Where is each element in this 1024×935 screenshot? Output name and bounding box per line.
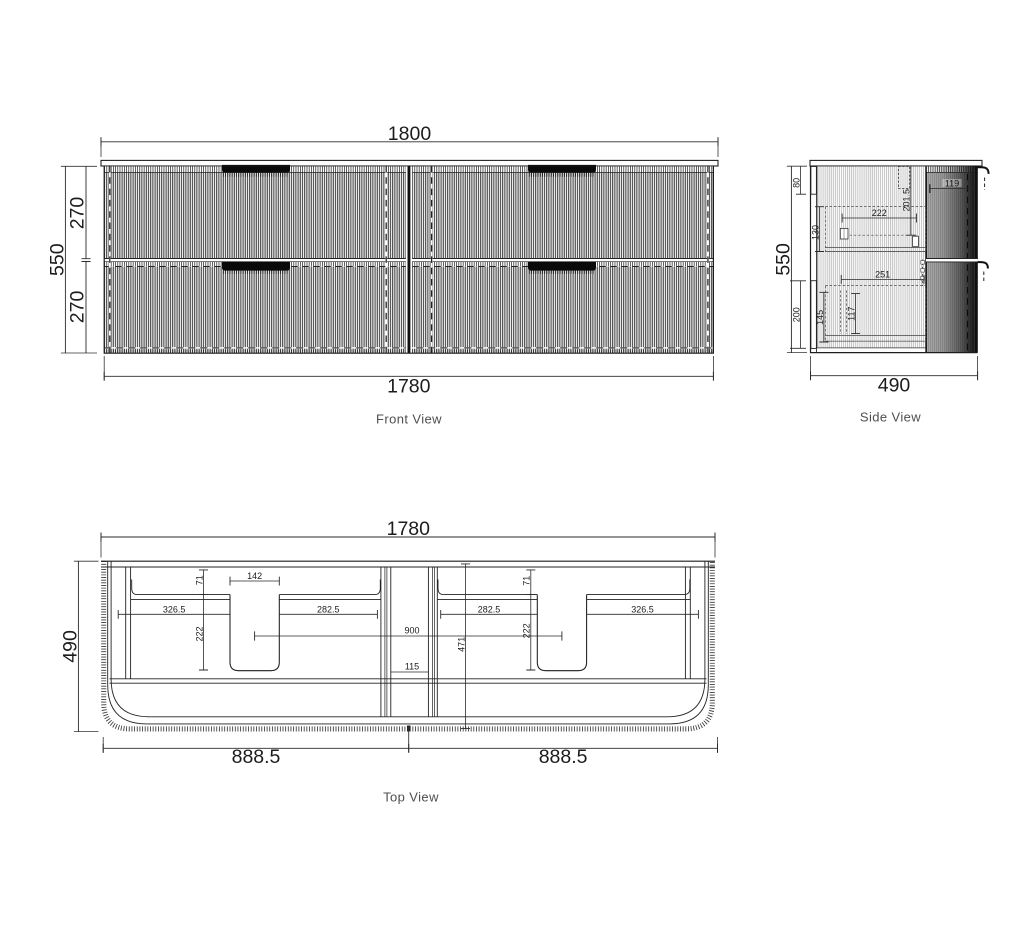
svg-text:282.5: 282.5 <box>478 604 501 614</box>
svg-text:270: 270 <box>67 290 89 323</box>
svg-text:Top View: Top View <box>383 789 439 804</box>
svg-text:251: 251 <box>875 269 890 279</box>
svg-text:326.5: 326.5 <box>631 604 654 614</box>
svg-text:80: 80 <box>791 178 801 188</box>
svg-text:888.5: 888.5 <box>232 746 281 768</box>
svg-text:490: 490 <box>878 375 911 397</box>
svg-text:550: 550 <box>46 243 68 276</box>
svg-text:119: 119 <box>945 179 959 189</box>
svg-text:142: 142 <box>247 571 262 581</box>
svg-text:550: 550 <box>773 243 795 276</box>
svg-text:200: 200 <box>792 307 802 322</box>
svg-text:326.5: 326.5 <box>163 604 186 614</box>
svg-text:222: 222 <box>194 626 204 641</box>
svg-text:145: 145 <box>815 310 825 325</box>
svg-text:1780: 1780 <box>387 518 431 540</box>
svg-text:71: 71 <box>522 576 532 586</box>
svg-text:282.5: 282.5 <box>317 604 340 614</box>
svg-text:Side View: Side View <box>860 410 921 425</box>
svg-text:888.5: 888.5 <box>539 746 588 768</box>
svg-text:471: 471 <box>456 637 466 652</box>
svg-text:270: 270 <box>67 197 89 230</box>
svg-text:1780: 1780 <box>387 375 431 397</box>
svg-text:115: 115 <box>405 662 419 672</box>
svg-text:130: 130 <box>810 225 820 240</box>
svg-text:201.5: 201.5 <box>902 189 912 212</box>
svg-text:222: 222 <box>872 208 887 218</box>
svg-text:71: 71 <box>194 575 204 585</box>
svg-text:490: 490 <box>60 630 82 663</box>
svg-text:900: 900 <box>404 626 419 636</box>
svg-text:117: 117 <box>847 307 857 321</box>
svg-text:1800: 1800 <box>388 123 432 145</box>
svg-text:Front View: Front View <box>376 412 442 427</box>
